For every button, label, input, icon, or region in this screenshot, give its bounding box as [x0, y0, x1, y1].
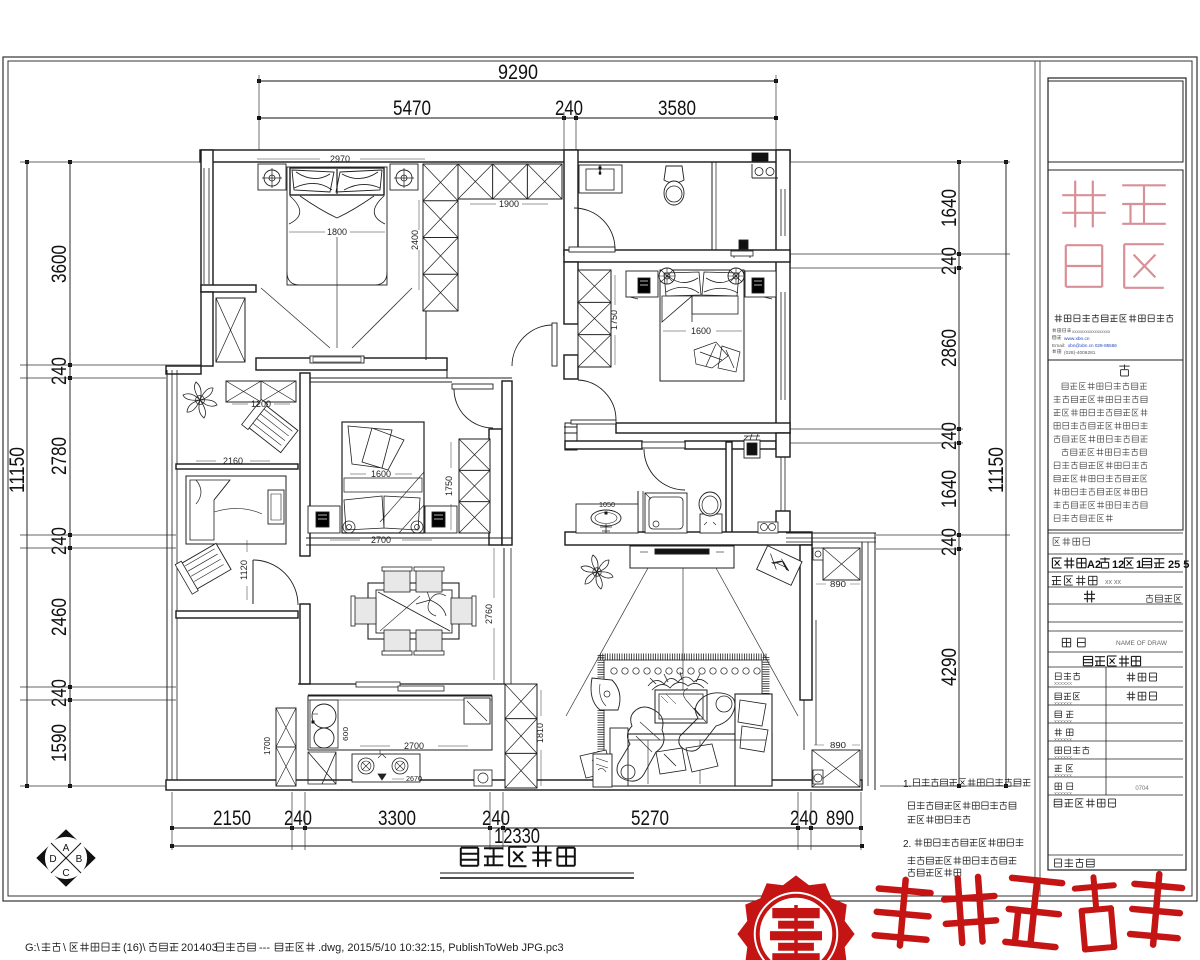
svg-text:9290: 9290: [498, 61, 538, 84]
svg-text:G:\: G:\: [25, 942, 41, 954]
svg-text:2700: 2700: [404, 741, 424, 751]
svg-text:3600: 3600: [48, 245, 71, 283]
svg-text:1120: 1120: [239, 560, 249, 580]
svg-text:1810: 1810: [535, 723, 545, 743]
svg-text:240: 240: [48, 527, 71, 555]
svg-text:A: A: [63, 843, 70, 854]
svg-text:3300: 3300: [378, 807, 416, 830]
svg-text:XXXXXX: XXXXXX: [1054, 773, 1072, 778]
svg-text:5270: 5270: [631, 807, 669, 830]
svg-text:1900: 1900: [499, 199, 519, 209]
svg-text:0704: 0704: [1135, 786, 1149, 792]
svg-text:D: D: [49, 854, 56, 865]
svg-text:.dwg, 2015/5/10 10:32:15, Publ: .dwg, 2015/5/10 10:32:15, PublishToWeb J…: [318, 942, 564, 954]
svg-text:1.: 1.: [903, 779, 911, 790]
svg-text:xxxxxxxxxxxxxxxxx: xxxxxxxxxxxxxxxxx: [1072, 329, 1111, 334]
svg-text:1640: 1640: [938, 189, 961, 227]
svg-text:240: 240: [48, 357, 71, 385]
svg-text:www.xbn.cn: www.xbn.cn: [1064, 336, 1090, 342]
svg-text:B: B: [76, 854, 83, 865]
svg-text:1200: 1200: [251, 399, 271, 409]
svg-text:xbn@xbn.cn 028-85566: xbn@xbn.cn 028-85566: [1068, 343, 1117, 348]
svg-text:(16)\: (16)\: [123, 942, 147, 954]
svg-text:1750: 1750: [444, 476, 454, 496]
svg-text:2160: 2160: [223, 456, 243, 466]
svg-text:Email:: Email:: [1052, 343, 1065, 349]
svg-text:890: 890: [830, 580, 847, 589]
svg-text:1050: 1050: [599, 500, 615, 509]
svg-text:1: 1: [1136, 559, 1142, 571]
svg-text:3580: 3580: [658, 97, 696, 120]
svg-text:2460: 2460: [48, 598, 71, 636]
svg-text:XXXXXX: XXXXXX: [1054, 737, 1072, 742]
svg-text:5470: 5470: [393, 97, 431, 120]
svg-text:11150: 11150: [6, 447, 29, 493]
svg-text:1640: 1640: [938, 470, 961, 508]
svg-text:2760: 2760: [484, 604, 494, 624]
svg-text:A2: A2: [1087, 559, 1101, 571]
svg-text:240: 240: [555, 97, 583, 120]
svg-text:600: 600: [341, 727, 350, 741]
svg-text:XXXXXX: XXXXXX: [1054, 719, 1072, 724]
svg-text:12330: 12330: [494, 825, 540, 848]
svg-text:(028)-4006281: (028)-4006281: [1064, 350, 1096, 356]
svg-text:1750: 1750: [609, 310, 619, 330]
svg-text:XXXXXX: XXXXXX: [1054, 701, 1072, 706]
svg-text:2670: 2670: [406, 774, 422, 783]
svg-text:2.: 2.: [903, 839, 911, 850]
svg-text:2860: 2860: [938, 329, 961, 367]
svg-text:240: 240: [938, 528, 961, 556]
svg-text:240: 240: [284, 807, 312, 830]
svg-text:2780: 2780: [48, 437, 71, 475]
svg-text:NAME OF DRAW: NAME OF DRAW: [1116, 640, 1168, 647]
svg-text:XXXXXX: XXXXXX: [1054, 755, 1072, 760]
svg-text:240: 240: [48, 679, 71, 707]
svg-text:XXXXXX: XXXXXX: [1054, 681, 1072, 686]
svg-text:890: 890: [826, 807, 854, 830]
svg-text:11150: 11150: [985, 447, 1008, 493]
svg-text:12: 12: [1112, 559, 1124, 571]
svg-text:25 5: 25 5: [1168, 559, 1189, 571]
svg-text:C: C: [62, 868, 69, 879]
svg-text:1700: 1700: [263, 736, 272, 755]
svg-text:2150: 2150: [213, 807, 251, 830]
svg-text:2970: 2970: [330, 154, 350, 164]
svg-text:240: 240: [938, 247, 961, 275]
svg-text:xx xx: xx xx: [1105, 579, 1121, 586]
svg-text:2700: 2700: [371, 535, 391, 545]
svg-text:1590: 1590: [48, 724, 71, 762]
svg-text:---: ---: [259, 942, 270, 954]
svg-text:1800: 1800: [327, 227, 347, 237]
svg-text:XXXXXX: XXXXXX: [1054, 791, 1072, 796]
svg-text:4290: 4290: [938, 648, 961, 686]
svg-text:1600: 1600: [371, 469, 391, 479]
svg-text:890: 890: [830, 741, 847, 750]
svg-text:240: 240: [938, 422, 961, 450]
svg-text:2400: 2400: [410, 230, 420, 250]
svg-text::: :: [1112, 800, 1115, 811]
svg-text:201403: 201403: [181, 942, 218, 954]
svg-text:240: 240: [790, 807, 818, 830]
svg-text:1600: 1600: [691, 326, 711, 336]
